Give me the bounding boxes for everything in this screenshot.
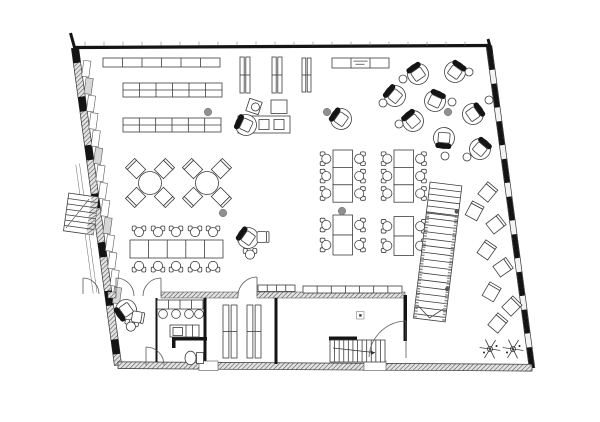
facade-panel — [103, 217, 112, 234]
round-chair — [188, 226, 202, 237]
seat-cushion — [274, 120, 284, 130]
shelf-unit — [240, 57, 250, 93]
interior-wall-hatched — [108, 292, 116, 298]
shelf-unit — [302, 58, 311, 92]
facade-panel — [96, 165, 105, 182]
column-dot — [204, 108, 212, 116]
door — [143, 278, 161, 296]
round-chair — [169, 261, 183, 272]
table-group — [333, 150, 353, 202]
sink — [185, 310, 194, 319]
stool — [463, 153, 471, 161]
table — [333, 185, 353, 202]
counter — [332, 58, 389, 68]
side-table — [271, 100, 287, 114]
interior-wall — [275, 298, 278, 364]
facade-panel — [84, 78, 93, 95]
exterior-staircase — [64, 193, 99, 235]
round-chair — [381, 152, 392, 166]
sink — [159, 310, 168, 319]
column-dot — [323, 108, 331, 116]
round-chair — [381, 239, 392, 253]
square-chair — [131, 311, 145, 324]
round-chair — [416, 152, 427, 166]
floor-plan-page — [0, 0, 600, 422]
facade-panel — [101, 200, 110, 217]
round-chair — [381, 187, 392, 201]
round-chair — [243, 249, 257, 260]
counter — [123, 83, 222, 97]
round-chair — [151, 226, 165, 237]
shelf-unit — [223, 305, 237, 358]
round-chair — [320, 187, 331, 201]
facade-panel — [98, 182, 107, 199]
square-chair — [257, 232, 269, 243]
round-chair — [169, 226, 183, 237]
interior-wall-hatched — [161, 292, 238, 298]
stool — [399, 75, 407, 83]
interior-wall — [172, 340, 176, 348]
interior-wall — [204, 298, 207, 364]
round-chair — [416, 187, 427, 201]
diamond-seat — [477, 240, 497, 260]
tub-chair — [232, 111, 260, 139]
round-chair — [355, 152, 366, 166]
round-chair — [320, 218, 331, 232]
table — [394, 150, 414, 167]
round-chair — [188, 261, 202, 272]
stool — [465, 68, 473, 76]
sink — [172, 310, 181, 319]
round-chair — [206, 226, 220, 237]
round-chair — [381, 219, 392, 233]
tub-chair — [458, 99, 487, 128]
toilet-tank — [197, 353, 204, 364]
table-group — [394, 217, 414, 256]
round-chair — [355, 238, 366, 252]
column-dot — [338, 207, 346, 215]
interior-wall — [172, 337, 207, 341]
table — [394, 217, 414, 237]
plant — [480, 340, 501, 359]
round-chair — [151, 261, 165, 272]
round-chair — [381, 169, 392, 183]
main-staircase — [413, 182, 462, 322]
round-chair — [320, 152, 331, 166]
stool — [448, 98, 456, 106]
interior-wall — [404, 295, 408, 341]
stool — [379, 99, 387, 107]
tub-chair — [403, 59, 432, 88]
table — [333, 215, 353, 235]
door-swing-arc — [238, 277, 257, 296]
round-chair — [132, 226, 146, 237]
door-threshold — [364, 361, 386, 371]
sink — [195, 310, 204, 319]
door-swing-arc — [143, 278, 161, 296]
diamond-seat — [478, 182, 498, 202]
counter — [258, 285, 295, 292]
diamond-seat — [493, 257, 513, 277]
tub-chair — [398, 106, 428, 136]
long-table — [130, 240, 223, 258]
door — [238, 277, 257, 296]
shelf-unit — [247, 305, 261, 358]
table — [333, 150, 353, 167]
toilet-bowl — [185, 351, 196, 365]
stool — [395, 120, 403, 128]
round-chair — [355, 187, 366, 201]
counter — [123, 118, 221, 132]
diamond-chair — [246, 98, 262, 114]
table — [394, 167, 414, 184]
diamond-seat — [502, 296, 522, 316]
seat-cushion — [259, 120, 269, 130]
top-wall — [75, 46, 489, 48]
column-dot — [444, 108, 452, 116]
round-chair — [416, 169, 427, 183]
facade-panel — [108, 252, 117, 269]
shelf-unit — [272, 57, 282, 93]
facade-panel — [93, 147, 102, 164]
bottom-wall — [118, 362, 532, 371]
interior-staircase — [330, 340, 385, 362]
facade-panel — [105, 235, 114, 252]
facade-panel — [89, 113, 98, 130]
round-chair — [355, 169, 366, 183]
facade-panel — [91, 130, 100, 147]
round-chair — [132, 261, 146, 272]
table — [333, 167, 353, 184]
round-table-group — [139, 172, 162, 195]
stool — [485, 96, 493, 104]
diamond-seat — [465, 201, 484, 221]
facade-panel — [82, 60, 91, 77]
column-dot — [219, 209, 227, 217]
plan-root — [64, 33, 535, 371]
long-table-group — [130, 240, 223, 258]
round-chair — [320, 169, 331, 183]
diamond-seat — [482, 282, 501, 302]
table — [394, 236, 414, 256]
table-group — [333, 215, 353, 255]
tub-chair — [433, 127, 456, 150]
plant — [503, 340, 524, 359]
counter — [303, 286, 402, 293]
counter — [103, 58, 220, 67]
stool — [441, 152, 449, 160]
diamond-seat — [486, 214, 506, 234]
diamond-seat — [488, 313, 508, 333]
round-table-group — [196, 172, 219, 195]
tub-chair — [326, 104, 355, 133]
table — [394, 185, 414, 202]
facade-panel — [86, 95, 95, 112]
table-group — [394, 150, 414, 202]
table — [333, 235, 353, 255]
round-chair — [320, 238, 331, 252]
round-chair — [206, 261, 220, 272]
round-table — [196, 172, 219, 195]
round-table — [139, 172, 162, 195]
floor-plan-drawing — [0, 0, 600, 422]
round-chair — [355, 218, 366, 232]
